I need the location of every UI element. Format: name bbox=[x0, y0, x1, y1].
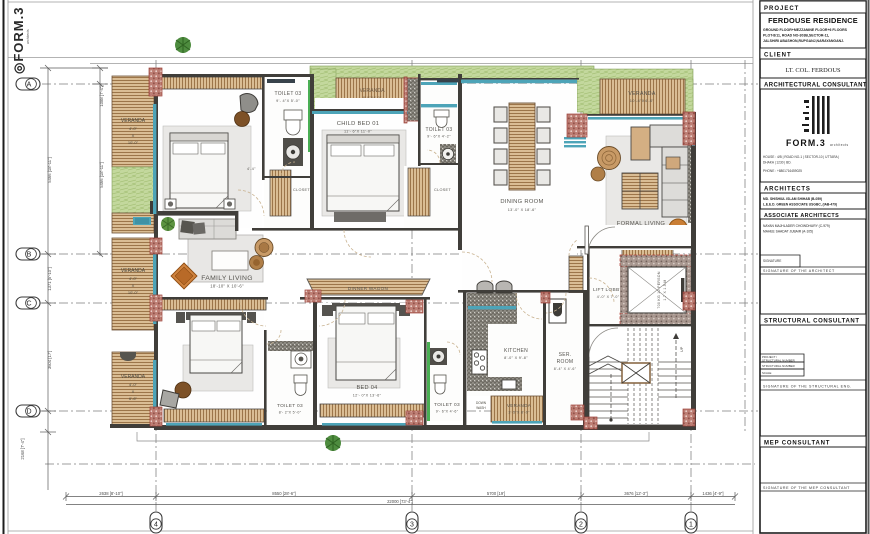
svg-text:8'-0" X 9'-8": 8'-0" X 9'-8" bbox=[504, 356, 528, 360]
svg-text:2168 [7'-4"]: 2168 [7'-4"] bbox=[20, 438, 25, 459]
svg-text:MAHEE SAADAT JUBAIR (A-105): MAHEE SAADAT JUBAIR (A-105) bbox=[763, 230, 813, 234]
svg-text:10'-0": 10'-0" bbox=[128, 290, 139, 295]
svg-text:10'-4"X4'-0": 10'-4"X4'-0" bbox=[630, 98, 655, 103]
svg-text:3676 [12'-3"]: 3676 [12'-3"] bbox=[624, 491, 647, 496]
svg-text:2: 2 bbox=[579, 522, 583, 529]
svg-text:VERANDA: VERANDA bbox=[359, 88, 385, 94]
svg-text:CLIENT: CLIENT bbox=[764, 53, 792, 59]
svg-text:JALSHIRI ABASHON,RUPGANJ,NARAY: JALSHIRI ABASHON,RUPGANJ,NARAYANGANJ. bbox=[763, 39, 844, 43]
svg-text:3'-5"X 8'-0": 3'-5"X 8'-0" bbox=[508, 411, 530, 415]
svg-text:NAYAN MAJHLADER CHOWDHURY (C-9: NAYAN MAJHLADER CHOWDHURY (C-979) bbox=[763, 224, 830, 228]
svg-text:VERANDA: VERANDA bbox=[507, 403, 532, 408]
svg-text:B: B bbox=[27, 252, 32, 259]
svg-text:DINING ROOM: DINING ROOM bbox=[500, 199, 543, 205]
svg-text:architects: architects bbox=[830, 143, 849, 147]
svg-text:X: X bbox=[132, 283, 135, 288]
svg-text:SIGNATURE OF THE STRUCTURAL EN: SIGNATURE OF THE STRUCTURAL ENG. bbox=[763, 385, 852, 389]
svg-text:12'- 0"X 13'-6": 12'- 0"X 13'-6" bbox=[353, 394, 382, 398]
svg-text:700 KG 10 PERSON: 700 KG 10 PERSON bbox=[657, 271, 661, 308]
svg-text:DINNER WAGON: DINNER WAGON bbox=[348, 286, 388, 291]
svg-text:1: 1 bbox=[689, 522, 693, 529]
svg-text:ASSOCIATE ARCHITECTS: ASSOCIATE ARCHITECTS bbox=[764, 213, 839, 219]
svg-text:STRUCTURAL NUMBER: STRUCTURAL NUMBER bbox=[762, 364, 795, 368]
svg-text:BED 04: BED 04 bbox=[356, 385, 377, 391]
svg-text:X: X bbox=[132, 389, 135, 394]
svg-text:10'-0": 10'-0" bbox=[128, 140, 139, 145]
svg-text:SCALE: SCALE bbox=[762, 371, 772, 375]
svg-text:9'- 6"X 4'-6": 9'- 6"X 4'-6" bbox=[436, 410, 459, 414]
svg-text:DOWN: DOWN bbox=[476, 401, 487, 405]
svg-text:PROJECT: PROJECT bbox=[764, 6, 799, 12]
svg-text:22000 [73'-4"]: 22000 [73'-4"] bbox=[387, 499, 413, 504]
svg-text:VERANDA: VERANDA bbox=[121, 374, 146, 380]
svg-text:VERANDA: VERANDA bbox=[121, 118, 146, 124]
svg-text:L.E.E.D. GREEN ASSOCIATE USGBC: L.E.E.D. GREEN ASSOCIATE USGBC, (IAB-479… bbox=[763, 203, 837, 207]
svg-text:1371 [5'-10"]: 1371 [5'-10"] bbox=[47, 267, 52, 290]
svg-text:3: 3 bbox=[410, 522, 414, 529]
svg-text:KITCHEN: KITCHEN bbox=[504, 348, 528, 354]
svg-text:C: C bbox=[26, 301, 31, 308]
svg-text:4'-4": 4'-4" bbox=[247, 167, 256, 171]
svg-text:9'- 4"X 5'-0": 9'- 4"X 5'-0" bbox=[276, 99, 300, 103]
svg-text:TOILET 03: TOILET 03 bbox=[426, 127, 453, 133]
svg-text:8'- 2"X 5'-0": 8'- 2"X 5'-0" bbox=[279, 411, 302, 415]
svg-text:CLOSET: CLOSET bbox=[434, 188, 451, 192]
svg-text:2638 [8'-10"]: 2638 [8'-10"] bbox=[99, 491, 122, 496]
svg-text:6'-6": 6'-6" bbox=[129, 396, 138, 401]
svg-text:ARCHITECTURAL CONSULTANT: ARCHITECTURAL CONSULTANT bbox=[764, 83, 867, 89]
svg-text:4'-0": 4'-0" bbox=[129, 276, 138, 281]
svg-text:8550 [28'-6"]: 8550 [28'-6"] bbox=[272, 491, 295, 496]
svg-text:GROUND FLOOR+MEZZANINE FLOOR+6: GROUND FLOOR+MEZZANINE FLOOR+6 FLOORS bbox=[763, 28, 848, 32]
svg-text:SIGNATURE: SIGNATURE bbox=[763, 259, 781, 263]
svg-text:13'-0" X 18'-6": 13'-0" X 18'-6" bbox=[508, 208, 537, 212]
svg-text:TOILET 03: TOILET 03 bbox=[275, 91, 302, 97]
svg-text:5466 [18'-11"]: 5466 [18'-11"] bbox=[99, 162, 104, 188]
svg-text:5700 [19']: 5700 [19'] bbox=[487, 491, 505, 496]
svg-text:9'- 6"X 4'-2": 9'- 6"X 4'-2" bbox=[427, 135, 451, 139]
svg-text:1436 [4'-9"]: 1436 [4'-9"] bbox=[702, 491, 723, 496]
svg-text:FAMILY LIVING: FAMILY LIVING bbox=[201, 275, 253, 282]
svg-text:MD. SHISHIUL ISLAM SHIHAB (B-0: MD. SHISHIUL ISLAM SHIHAB (B-059) bbox=[763, 197, 822, 201]
svg-text:X: X bbox=[132, 133, 135, 138]
svg-text:TOILET 03: TOILET 03 bbox=[277, 403, 303, 409]
svg-text:STRUCTURAL CONSULTANT: STRUCTURAL CONSULTANT bbox=[764, 319, 860, 325]
svg-text:LT. COL. FERDOUS: LT. COL. FERDOUS bbox=[785, 67, 840, 74]
svg-text:ARCHITECTS: ARCHITECTS bbox=[764, 187, 811, 193]
svg-text:TOILET 03: TOILET 03 bbox=[434, 402, 460, 408]
svg-text:architects: architects bbox=[26, 29, 30, 44]
svg-text:STRUCTURAL NUMBER: STRUCTURAL NUMBER bbox=[762, 358, 795, 362]
svg-text:1088 [7'-4"]: 1088 [7'-4"] bbox=[99, 85, 104, 106]
svg-text:4: 4 bbox=[154, 522, 158, 529]
svg-text:ROOM: ROOM bbox=[557, 359, 574, 365]
svg-text:◎FORM.3: ◎FORM.3 bbox=[11, 7, 26, 74]
svg-text:LIFT LOBBY: LIFT LOBBY bbox=[593, 287, 624, 293]
svg-text:SIGNATURE OF THE ARCHITECT: SIGNATURE OF THE ARCHITECT bbox=[763, 269, 835, 273]
svg-text:D: D bbox=[26, 409, 31, 416]
svg-text:FORM.3: FORM.3 bbox=[786, 138, 826, 148]
svg-text:8'-4" X 4'-6": 8'-4" X 4'-6" bbox=[554, 367, 577, 371]
svg-text:18'-10" X 10'-6": 18'-10" X 10'-6" bbox=[210, 284, 244, 289]
svg-text:VERANDA: VERANDA bbox=[121, 268, 146, 274]
svg-text:4'-0": 4'-0" bbox=[129, 126, 138, 131]
svg-text:HOUSE : 4/B | ROAD NO-1 | SECT: HOUSE : 4/B | ROAD NO-1 | SECTOR-10 | UT… bbox=[763, 155, 839, 159]
svg-text:1.7 X 1.5 M: 1.7 X 1.5 M bbox=[663, 279, 667, 300]
svg-text:4'-0": 4'-0" bbox=[129, 382, 138, 387]
svg-text:11'- 6"X 11'-0": 11'- 6"X 11'-0" bbox=[344, 130, 372, 134]
svg-text:5466 [18'-11"]: 5466 [18'-11"] bbox=[47, 157, 52, 183]
svg-text:3604 [17']: 3604 [17'] bbox=[47, 351, 52, 369]
svg-text:DHAKA | 1230 | BD.: DHAKA | 1230 | BD. bbox=[763, 161, 792, 165]
svg-text:CLOSET: CLOSET bbox=[293, 188, 310, 192]
svg-text:PLOT-8/11, ROAD NO-303B,SECTOR: PLOT-8/11, ROAD NO-303B,SECTOR-11, bbox=[763, 34, 829, 38]
svg-text:A: A bbox=[27, 82, 32, 89]
svg-text:VERANDA: VERANDA bbox=[628, 91, 655, 97]
svg-text:PHONE : +8801716459025: PHONE : +8801716459025 bbox=[763, 169, 802, 173]
svg-text:WASH: WASH bbox=[476, 406, 486, 410]
svg-text:UP: UP bbox=[680, 346, 684, 352]
svg-text:SIGNATURE OF THE MEP CONSULTAN: SIGNATURE OF THE MEP CONSULTANT bbox=[763, 486, 850, 490]
svg-text:CHILD BED 01: CHILD BED 01 bbox=[337, 121, 380, 127]
svg-text:FERDOUSE RESIDENCE: FERDOUSE RESIDENCE bbox=[768, 16, 858, 25]
svg-text:4'-0" X 7'-0": 4'-0" X 7'-0" bbox=[597, 295, 620, 299]
svg-text:SER.: SER. bbox=[559, 352, 572, 358]
svg-text:MEP CONSULTANT: MEP CONSULTANT bbox=[764, 441, 830, 447]
